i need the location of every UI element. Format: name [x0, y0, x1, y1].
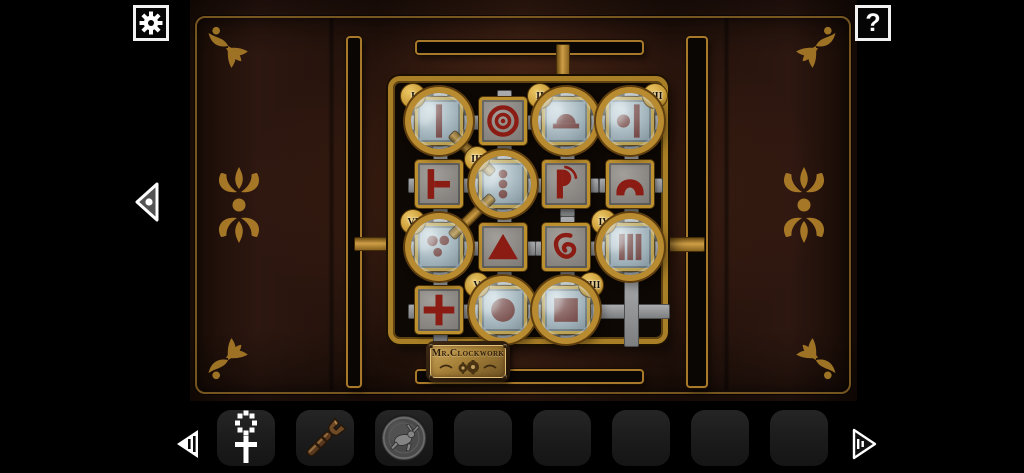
- back-arrow-button[interactable]: [133, 181, 163, 228]
- magnifier-lens-VII[interactable]: [602, 93, 658, 149]
- puzzle-board: IIIVIIIIIVIIVVVIII: [388, 76, 668, 344]
- magnifier-lens-VIII[interactable]: [538, 282, 594, 338]
- concentric-circles-symbol: [482, 100, 524, 142]
- plus-symbol: [418, 289, 460, 331]
- magnifier-lens-V[interactable]: [475, 282, 531, 338]
- puzzle-tile-triangle[interactable]: [479, 223, 527, 271]
- wall-panel-seam: [723, 18, 730, 390]
- corner-flourish-icon: [202, 336, 250, 384]
- arrow-left-icon: [174, 428, 200, 460]
- inventory-slot-hare-coin[interactable]: [375, 410, 433, 466]
- settings-button[interactable]: [133, 5, 169, 41]
- inventory-slot-empty-6[interactable]: [612, 410, 670, 466]
- plaque-gears-icon: [436, 360, 500, 375]
- flag-p-symbol: [545, 163, 587, 205]
- corner-flourish-icon: [794, 336, 842, 384]
- magnifier-lens-IV[interactable]: [602, 219, 658, 275]
- machine-left-bar: [346, 36, 362, 388]
- lens-shine: [413, 224, 438, 254]
- lens-numeral: III: [471, 154, 483, 165]
- lens-shine: [540, 98, 565, 128]
- spiral-symbol: [545, 226, 587, 268]
- triangle-symbol: [482, 226, 524, 268]
- magnifier-lens-I[interactable]: [411, 93, 467, 149]
- corner-flourish-icon: [202, 22, 250, 70]
- lens-shine: [604, 98, 629, 128]
- hare-coin-icon: [379, 413, 429, 463]
- ankh-key-icon: [225, 410, 267, 466]
- help-button[interactable]: ?: [855, 5, 891, 41]
- machine-top-bar: [415, 40, 644, 55]
- double-arch-symbol: [609, 163, 651, 205]
- inventory-next-button[interactable]: [852, 428, 878, 465]
- lens-shine: [413, 98, 438, 128]
- lens-numeral: II: [536, 91, 544, 102]
- lens-numeral: IV: [598, 217, 609, 228]
- inventory-bar: [0, 401, 1024, 473]
- puzzle-tile-flag-p[interactable]: [542, 160, 590, 208]
- game-screen: Mr.Clockwork: [0, 0, 1024, 473]
- puzzle-tile-spiral[interactable]: [542, 223, 590, 271]
- puzzle-tile-concentric-circles[interactable]: [479, 97, 527, 145]
- tee-right-symbol: [418, 163, 460, 205]
- fleur-de-lis-icon: [204, 163, 274, 247]
- puzzle-tile-tee-right[interactable]: [415, 160, 463, 208]
- triangle-left-icon: [133, 181, 163, 223]
- inventory-slot-empty-7[interactable]: [691, 410, 749, 466]
- lens-shine: [477, 161, 502, 191]
- inventory-prev-button[interactable]: [174, 428, 200, 465]
- magnifier-lens-III[interactable]: [475, 156, 531, 212]
- lens-numeral: V: [473, 280, 480, 291]
- lens-shine: [604, 224, 629, 254]
- lens-numeral: VI: [407, 217, 418, 228]
- wall-panel-seam: [328, 18, 335, 390]
- lens-numeral: I: [411, 91, 415, 102]
- inventory-slot-empty-5[interactable]: [533, 410, 591, 466]
- magnifier-lens-II[interactable]: [538, 93, 594, 149]
- puzzle-tile-plus[interactable]: [415, 286, 463, 334]
- mr-clockwork-plaque: Mr.Clockwork: [426, 341, 510, 382]
- lens-shine: [477, 287, 502, 317]
- wrench-icon: [298, 411, 352, 465]
- inventory-slot-wrench[interactable]: [296, 410, 354, 466]
- lens-numeral: VII: [647, 91, 662, 102]
- magnifier-lens-VI[interactable]: [411, 219, 467, 275]
- gear-icon: [139, 11, 163, 35]
- puzzle-tile-double-arch[interactable]: [606, 160, 654, 208]
- fleur-de-lis-icon: [769, 163, 839, 247]
- inventory-slot-empty-8[interactable]: [770, 410, 828, 466]
- plaque-text: Mr.Clockwork: [432, 349, 505, 359]
- inventory-slot-empty-4[interactable]: [454, 410, 512, 466]
- machine-post-right: [663, 237, 705, 252]
- arrow-right-icon: [852, 428, 878, 460]
- lens-shine: [540, 287, 565, 317]
- machine-right-bar: [686, 36, 708, 388]
- corner-flourish-icon: [794, 22, 842, 70]
- inventory-slot-ankh-key[interactable]: [217, 410, 275, 466]
- help-label: ?: [865, 9, 880, 38]
